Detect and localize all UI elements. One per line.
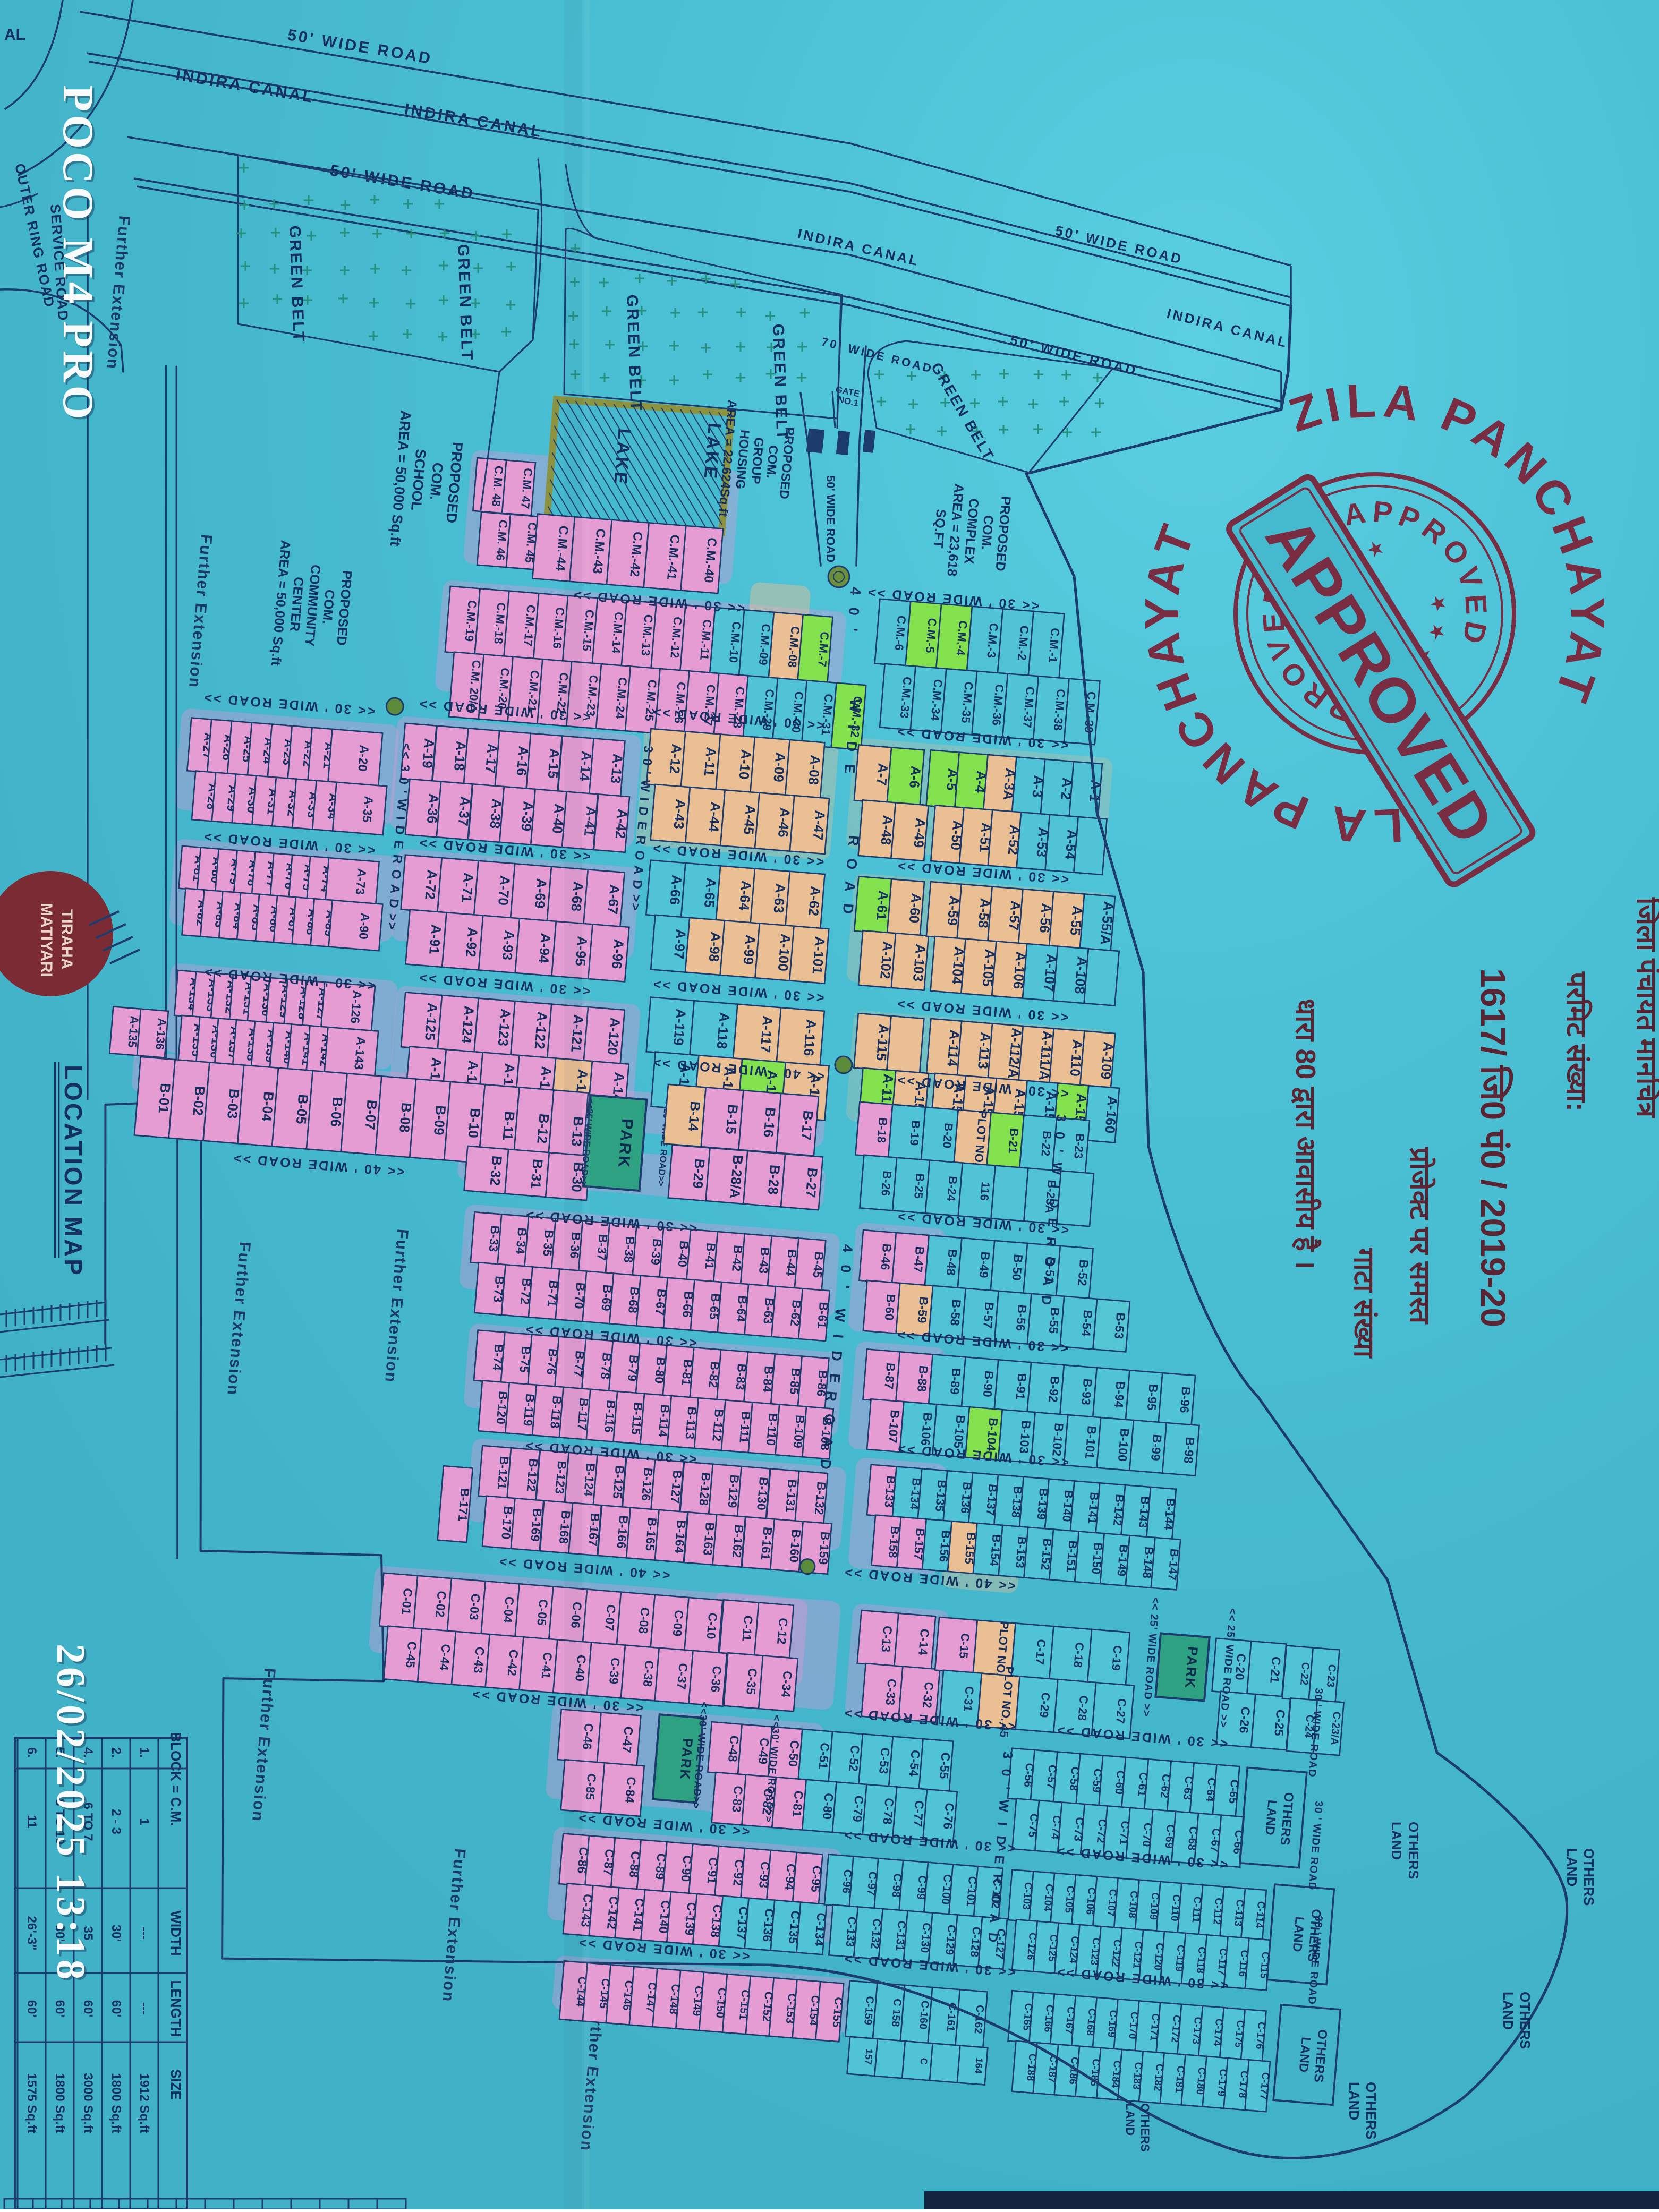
svg-text:B-60: B-60	[882, 1294, 898, 1321]
svg-text:LAND: LAND	[1262, 1799, 1279, 1836]
svg-text:C-22: C-22	[1298, 1662, 1311, 1686]
svg-text:A-123: A-123	[495, 1008, 514, 1047]
svg-text:A-93: A-93	[499, 929, 517, 961]
svg-text:B-29: B-29	[690, 1158, 708, 1190]
svg-text:B-88: B-88	[915, 1365, 931, 1393]
svg-text:B-50: B-50	[1009, 1254, 1025, 1282]
svg-text:A-49: A-49	[911, 817, 929, 849]
svg-text:C-01: C-01	[399, 1588, 415, 1616]
svg-text:POCO M4 PRO: POCO M4 PRO	[54, 85, 103, 422]
svg-text:C-29: C-29	[1037, 1692, 1053, 1719]
svg-text:26'-3": 26'-3"	[24, 1916, 39, 1950]
svg-text:B-144: B-144	[1162, 1498, 1178, 1531]
svg-text:B-53: B-53	[1112, 1312, 1128, 1339]
svg-text:C-32: C-32	[920, 1681, 936, 1709]
svg-text:LAND: LAND	[1290, 1916, 1307, 1953]
svg-text:50' WIDE ROAD: 50' WIDE ROAD	[824, 475, 837, 562]
svg-text:C-05: C-05	[534, 1599, 550, 1626]
svg-text:B-55: B-55	[1047, 1307, 1062, 1335]
svg-text:A-46: A-46	[775, 807, 793, 838]
svg-text:B-99: B-99	[1148, 1434, 1164, 1462]
svg-text:---: ---	[137, 1927, 151, 1940]
svg-text:B-46: B-46	[878, 1243, 894, 1271]
svg-text:C.M.-4: C.M.-4	[954, 620, 969, 656]
svg-text:B-14: B-14	[685, 1101, 703, 1132]
svg-text:A-109: A-109	[1098, 1041, 1117, 1080]
svg-text:C-12: C-12	[775, 1617, 790, 1645]
svg-text:LAND: LAND	[1564, 1848, 1580, 1886]
svg-text:C-28: C-28	[1075, 1695, 1091, 1721]
svg-text:A-124: A-124	[458, 1005, 478, 1045]
svg-text:1800 Sq.ft: 1800 Sq.ft	[53, 2073, 67, 2133]
svg-text:C-03: C-03	[467, 1593, 483, 1621]
svg-text:B-24: B-24	[945, 1175, 960, 1202]
svg-text:C-33: C-33	[883, 1678, 899, 1706]
svg-text:B-56: B-56	[1014, 1304, 1030, 1332]
svg-text:157: 157	[863, 2048, 874, 2065]
svg-text:C-18: C-18	[1071, 1642, 1086, 1668]
svg-text:1912 Sq.ft: 1912 Sq.ft	[137, 2073, 151, 2133]
svg-text:B-48: B-48	[944, 1249, 960, 1276]
svg-text:C-25: C-25	[1272, 1709, 1288, 1737]
svg-text:C-17: C-17	[1033, 1639, 1049, 1666]
svg-text:A-119: A-119	[670, 1008, 689, 1046]
svg-text:TIRAHA: TIRAHA	[58, 909, 75, 969]
svg-text:B-49: B-49	[977, 1251, 993, 1279]
svg-text:C-42: C-42	[505, 1649, 521, 1677]
svg-text:A-125: A-125	[422, 1002, 441, 1041]
svg-text:A-136: A-136	[153, 1018, 169, 1051]
svg-text:LAND: LAND	[1500, 1992, 1516, 2030]
svg-text:LAND: LAND	[1296, 2036, 1313, 2073]
svg-text:B-16: B-16	[761, 1107, 779, 1138]
svg-text:B-25: B-25	[912, 1173, 927, 1199]
svg-text:B-54: B-54	[1079, 1310, 1095, 1337]
svg-text:A-08: A-08	[805, 755, 823, 786]
svg-text:LENGTH: LENGTH	[168, 1980, 184, 2037]
svg-text:C.M.-7: C.M.-7	[815, 631, 831, 668]
svg-text:C-38: C-38	[641, 1660, 657, 1687]
svg-text:B-91: B-91	[1013, 1373, 1029, 1400]
svg-text:C-14: C-14	[916, 1628, 932, 1656]
svg-text:B-59: B-59	[915, 1296, 931, 1324]
svg-text:C-134: C-134	[812, 1912, 829, 1947]
svg-text:3000 Sq.ft: 3000 Sq.ft	[81, 2073, 95, 2133]
svg-text:B-17: B-17	[798, 1110, 816, 1141]
svg-text:A-117: A-117	[757, 1015, 776, 1053]
svg-text:LAND: LAND	[1389, 1822, 1405, 1860]
svg-text:A-118: A-118	[714, 1012, 733, 1050]
svg-text:30': 30'	[109, 1925, 123, 1942]
svg-text:116: 116	[977, 1181, 992, 1201]
svg-text:COM.: COM.	[319, 589, 337, 625]
svg-text:C-10: C-10	[704, 1612, 720, 1640]
svg-text:---: ---	[137, 2002, 151, 2015]
svg-text:C.M.-5: C.M.-5	[923, 618, 939, 654]
svg-text:C-13: C-13	[879, 1625, 895, 1653]
svg-text:BLOCK = C.M.: BLOCK = C.M.	[168, 1732, 184, 1826]
svg-text:6.: 6.	[24, 1747, 39, 1758]
svg-text:B-57: B-57	[981, 1302, 997, 1329]
svg-text:A-67: A-67	[605, 884, 623, 915]
svg-text:A-44: A-44	[705, 801, 724, 833]
svg-text:C-155: C-155	[830, 1996, 845, 2028]
svg-text:A-120: A-120	[605, 1017, 624, 1056]
svg-text:B-103: B-103	[1017, 1420, 1033, 1454]
svg-text:C-76: C-76	[941, 1803, 957, 1830]
svg-text:B-58: B-58	[948, 1299, 964, 1327]
svg-text:1575 Sq.ft: 1575 Sq.ft	[24, 2073, 39, 2133]
svg-text:A-122: A-122	[531, 1011, 550, 1050]
svg-text:LAND: LAND	[1346, 2082, 1362, 2120]
svg-text:A-11: A-11	[701, 747, 719, 777]
svg-text:C.M.-2: C.M.-2	[1015, 625, 1031, 661]
svg-text:A-13: A-13	[608, 753, 626, 784]
svg-text:B-23: B-23	[1071, 1133, 1087, 1159]
svg-text:A-73: A-73	[353, 868, 369, 895]
svg-text:C-84: C-84	[623, 1776, 639, 1804]
svg-text:A-160: A-160	[1102, 1095, 1121, 1134]
svg-text:C-177: C-177	[1257, 2072, 1271, 2100]
svg-text:C-31: C-31	[961, 1686, 976, 1712]
svg-text:SIZE: SIZE	[168, 2069, 184, 2100]
svg-text:C 158: C 158	[889, 1998, 903, 2027]
svg-text:OTHERS: OTHERS	[1517, 1992, 1533, 2049]
svg-text:B-20: B-20	[940, 1122, 956, 1149]
svg-text:COM.: COM.	[979, 515, 996, 550]
svg-text:A-6: A-6	[906, 765, 924, 789]
svg-text:1617/ जि0 पं0 / 2019-20: 1617/ जि0 पं0 / 2019-20	[1474, 968, 1513, 1327]
svg-text:धारा 80 द्वारा आवासीय है ।: धारा 80 द्वारा आवासीय है ।	[1290, 998, 1322, 1269]
svg-text:C-23: C-23	[1324, 1664, 1338, 1688]
svg-text:C-27: C-27	[1113, 1698, 1129, 1724]
svg-text:B-32: B-32	[487, 1155, 505, 1186]
svg-text:OTHERS: OTHERS	[1138, 2103, 1152, 2152]
svg-text:11: 11	[24, 1815, 39, 1828]
svg-text:C.M.-3: C.M.-3	[984, 622, 1000, 659]
svg-text:A-09: A-09	[770, 751, 788, 783]
svg-text:A-43: A-43	[671, 799, 689, 830]
svg-text:B-102: B-102	[1050, 1422, 1066, 1457]
svg-text:C-02: C-02	[433, 1591, 449, 1618]
svg-text:A-92: A-92	[463, 927, 481, 958]
svg-text:A-126: A-126	[348, 990, 364, 1024]
svg-text:B-104: B-104	[984, 1417, 1000, 1451]
svg-text:C-09: C-09	[670, 1610, 686, 1637]
svg-text:A-101: A-101	[809, 936, 828, 975]
svg-text:OTHERS: OTHERS	[1581, 1848, 1597, 1906]
svg-text:60': 60'	[109, 2000, 123, 2017]
svg-text:A-71: A-71	[458, 872, 477, 903]
svg-text:C-07: C-07	[602, 1604, 618, 1632]
svg-text:B-100: B-100	[1116, 1428, 1132, 1462]
svg-text:जिला पंचायत मानचित्र: जिला पंचायत मानचित्र	[1631, 897, 1659, 1118]
svg-text:C-21: C-21	[1267, 1656, 1283, 1684]
svg-text:A-47: A-47	[810, 810, 828, 841]
svg-text:A-116: A-116	[801, 1019, 819, 1057]
svg-text:C-95: C-95	[809, 1865, 824, 1893]
svg-text:A-90: A-90	[356, 912, 372, 940]
svg-text:B-147: B-147	[1165, 1548, 1181, 1581]
svg-text:B-107: B-107	[886, 1410, 902, 1444]
svg-text:1: 1	[137, 1818, 151, 1825]
svg-text:A-42: A-42	[612, 808, 631, 840]
svg-text:164: 164	[973, 2057, 984, 2074]
svg-text:A-63: A-63	[770, 883, 788, 914]
svg-text:B-26: B-26	[879, 1170, 894, 1197]
svg-text:COM.: COM.	[763, 445, 780, 479]
svg-text:A-70: A-70	[495, 875, 513, 906]
svg-text:LOCATION MAP: LOCATION MAP	[59, 1065, 87, 1277]
svg-text:B-28: B-28	[765, 1164, 783, 1195]
svg-text:B-52: B-52	[1075, 1259, 1091, 1287]
svg-text:C-41: C-41	[539, 1652, 555, 1679]
svg-text:B-87: B-87	[882, 1362, 898, 1390]
svg-text:B-106: B-106	[918, 1412, 935, 1447]
svg-text:WIDTH: WIDTH	[168, 1910, 184, 1955]
svg-text:B-96: B-96	[1177, 1386, 1193, 1414]
svg-text:C-39: C-39	[607, 1657, 623, 1685]
svg-text:C-65: C-65	[1227, 1779, 1241, 1805]
svg-text:B-61: B-61	[815, 1302, 831, 1329]
svg-text:A-60: A-60	[906, 893, 924, 924]
svg-text:C-44: C-44	[437, 1644, 453, 1671]
svg-text:B-31: B-31	[528, 1158, 546, 1190]
svg-text:AL: AL	[4, 26, 25, 44]
svg-text:C-45: C-45	[403, 1641, 419, 1668]
svg-text:C-04: C-04	[501, 1596, 517, 1624]
svg-text:B-45: B-45	[811, 1251, 827, 1279]
svg-text:C-15: C-15	[957, 1633, 972, 1659]
svg-text:MATIYARI: MATIYARI	[38, 903, 55, 977]
svg-text:2.: 2.	[109, 1747, 123, 1758]
svg-text:C-55: C-55	[937, 1752, 953, 1780]
svg-text:B-105: B-105	[951, 1415, 968, 1449]
svg-text:COM.: COM.	[427, 462, 446, 501]
svg-text:परमिट संख्या:: परमिट संख्या:	[1561, 971, 1593, 1112]
svg-text:B-95: B-95	[1145, 1383, 1161, 1411]
svg-text:C-36: C-36	[708, 1666, 724, 1693]
svg-text:B-27: B-27	[803, 1167, 821, 1199]
svg-text:A-99: A-99	[740, 934, 758, 966]
svg-text:B-159: B-159	[816, 1531, 832, 1566]
svg-text:A-69: A-69	[532, 878, 550, 909]
svg-text:C-114: C-114	[1253, 1901, 1266, 1929]
svg-text:B-132: B-132	[812, 1481, 829, 1516]
svg-text:LAND: LAND	[1124, 2103, 1137, 2136]
svg-text:C-43: C-43	[471, 1646, 487, 1674]
svg-text:OTHERS: OTHERS	[1406, 1822, 1422, 1879]
svg-text:C-47: C-47	[620, 1726, 636, 1754]
svg-text:A-20: A-20	[355, 745, 371, 772]
svg-text:A-72: A-72	[422, 869, 440, 900]
svg-text:60': 60'	[81, 2000, 95, 2017]
svg-text:A-62: A-62	[805, 885, 823, 917]
svg-text:C-26: C-26	[1237, 1706, 1253, 1734]
svg-text:B-171: B-171	[456, 1488, 472, 1522]
svg-text:1.: 1.	[137, 1747, 151, 1758]
svg-text:C-11: C-11	[739, 1615, 755, 1642]
svg-text:C-08: C-08	[636, 1607, 652, 1634]
svg-text:A-103: A-103	[910, 943, 929, 982]
svg-text:C-35: C-35	[744, 1668, 760, 1695]
svg-text:A-91: A-91	[426, 924, 444, 955]
svg-text:A-65: A-65	[701, 877, 719, 909]
svg-text:C-20: C-20	[1232, 1653, 1248, 1681]
svg-text:B-15: B-15	[723, 1104, 741, 1135]
svg-text:A-143: A-143	[352, 1036, 368, 1071]
svg-text:C.M.-1: C.M.-1	[1046, 627, 1062, 663]
svg-text:60': 60'	[53, 2000, 67, 2017]
svg-text:A-96: A-96	[609, 938, 627, 970]
svg-text:C-37: C-37	[675, 1663, 691, 1690]
svg-text:B-93: B-93	[1079, 1378, 1095, 1406]
svg-text:C-34: C-34	[779, 1670, 795, 1698]
svg-text:C-19: C-19	[1109, 1645, 1125, 1671]
svg-text:B-92: B-92	[1046, 1376, 1062, 1403]
svg-text:A-35: A-35	[360, 796, 376, 823]
svg-text:B-47: B-47	[911, 1246, 927, 1274]
svg-text:A-94: A-94	[535, 933, 554, 964]
svg-text:प्रोजेक्ट पर समस्त: प्रोजेक्ट पर समस्त	[1404, 1147, 1436, 1325]
svg-text:B-21: B-21	[1006, 1128, 1022, 1154]
svg-text:1800 Sq.ft: 1800 Sq.ft	[109, 2073, 123, 2133]
svg-text:OTHERS: OTHERS	[1363, 2082, 1379, 2139]
svg-text:26/02/2025 13:18: 26/02/2025 13:18	[48, 1644, 93, 1983]
svg-text:B-18: B-18	[874, 1117, 890, 1144]
svg-text:60': 60'	[24, 2000, 39, 2017]
svg-text:PARK: PARK	[1182, 1646, 1201, 1689]
svg-text:B-94: B-94	[1112, 1381, 1128, 1408]
svg-text:SQ.FT: SQ.FT	[931, 508, 949, 549]
svg-text:B-98: B-98	[1181, 1437, 1197, 1464]
svg-text:B-89: B-89	[948, 1368, 964, 1395]
svg-text:B-90: B-90	[981, 1370, 997, 1398]
svg-text:C-176: C-176	[1254, 2021, 1267, 2049]
svg-text:गाटा संख्या: गाटा संख्या	[1348, 1248, 1379, 1359]
svg-text:C.M.-6: C.M.-6	[892, 615, 908, 651]
svg-text:B-101: B-101	[1083, 1425, 1099, 1459]
svg-text:C: C	[918, 2057, 929, 2065]
svg-text:2 - 3: 2 - 3	[109, 1809, 123, 1834]
svg-text:B-19: B-19	[907, 1120, 923, 1147]
